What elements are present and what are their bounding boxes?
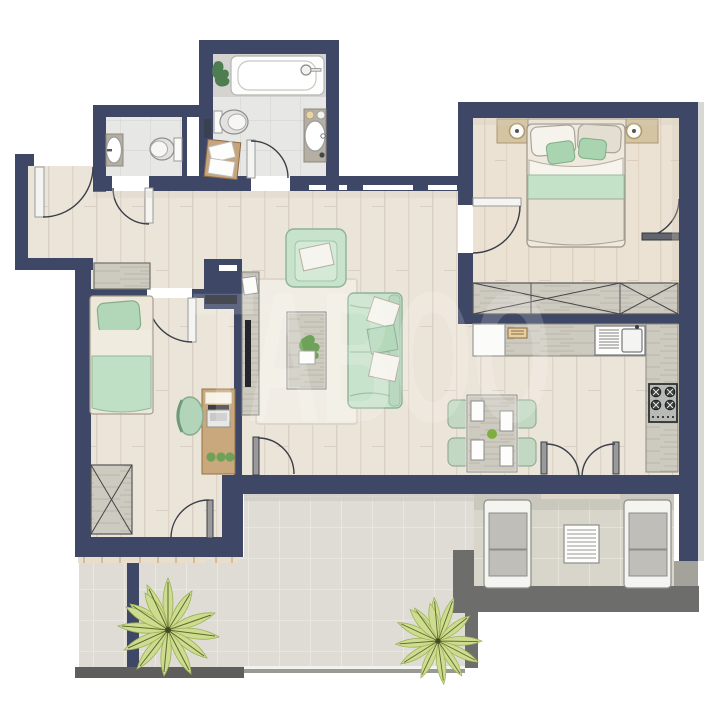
svg-text:TABOO: TABOO [192,254,552,461]
